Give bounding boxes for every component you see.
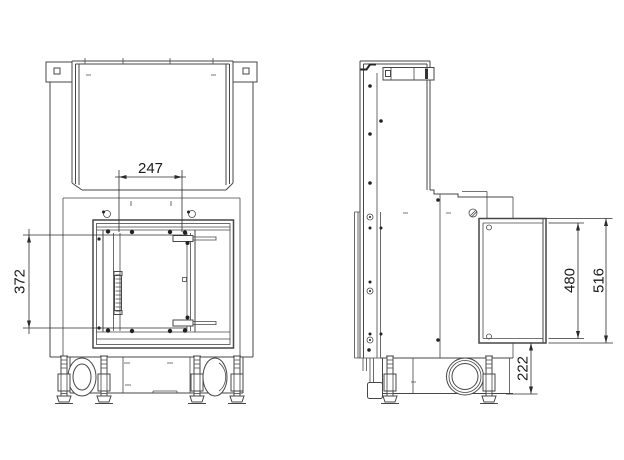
- side-screws: [367, 84, 477, 382]
- hanging-hook: [361, 65, 377, 70]
- flue-spigot: [447, 358, 484, 395]
- base-assembly-side: [363, 356, 513, 404]
- mounting-bracket-side: [383, 68, 434, 81]
- firebox-top-fittings: [102, 201, 196, 218]
- fireplace-insert-drawing: 247 372 480 516 222: [0, 0, 624, 460]
- dim-label-247: 247: [138, 160, 163, 177]
- bolt-symbol: [469, 209, 477, 217]
- front-view: [46, 58, 257, 404]
- side-panel-plate: [479, 219, 546, 344]
- grate-prongs: [363, 358, 374, 371]
- dim-label-516: 516: [591, 268, 608, 293]
- dimension-side-inner-height: 480: [549, 223, 585, 339]
- side-view: [355, 61, 547, 404]
- bracket-tab: [425, 69, 428, 80]
- mounting-bracket-left: [46, 62, 72, 82]
- technical-drawing-page: 247 372 480 516 222: [0, 0, 624, 460]
- air-duct-ring: [68, 358, 96, 396]
- dimension-side-base-height: 222: [506, 343, 538, 394]
- air-duct-oval: [203, 358, 227, 396]
- dim-label-480: 480: [562, 268, 579, 293]
- mounting-bracket-right: [231, 62, 257, 82]
- dim-label-222: 222: [515, 356, 532, 381]
- dim-label-372: 372: [12, 269, 29, 294]
- front-foot-bracket: [368, 383, 383, 399]
- base-assembly-front: [55, 356, 246, 404]
- dimension-side-total-height: 516: [546, 219, 613, 344]
- column-body: [355, 61, 431, 358]
